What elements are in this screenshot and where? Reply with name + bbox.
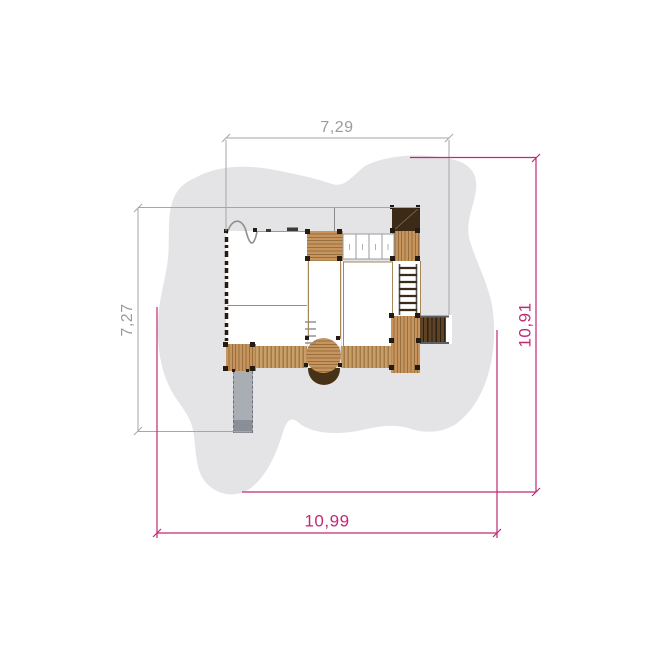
- rope-bridge: [343, 234, 394, 259]
- dimension-label-top: 7,29: [320, 120, 353, 136]
- top-railing: [256, 207, 335, 232]
- dimension-structure: [134, 134, 453, 435]
- posts: [223, 205, 421, 372]
- wavy-balance-beam: [227, 221, 257, 243]
- dimension-label-left: 7,27: [120, 303, 136, 336]
- linework-layer: [0, 0, 660, 660]
- roof-ridge: [393, 208, 419, 231]
- playground-plan-drawing: 7,29 7,27 10,91 10,99: [0, 0, 660, 660]
- stair-rails: [420, 317, 449, 344]
- frame-lines: [227, 261, 421, 346]
- ladder-right: [399, 264, 417, 315]
- dimension-safety-zone: [153, 154, 540, 538]
- dimension-label-right: 10,91: [517, 302, 534, 347]
- dimension-label-bottom: 10,99: [304, 513, 349, 530]
